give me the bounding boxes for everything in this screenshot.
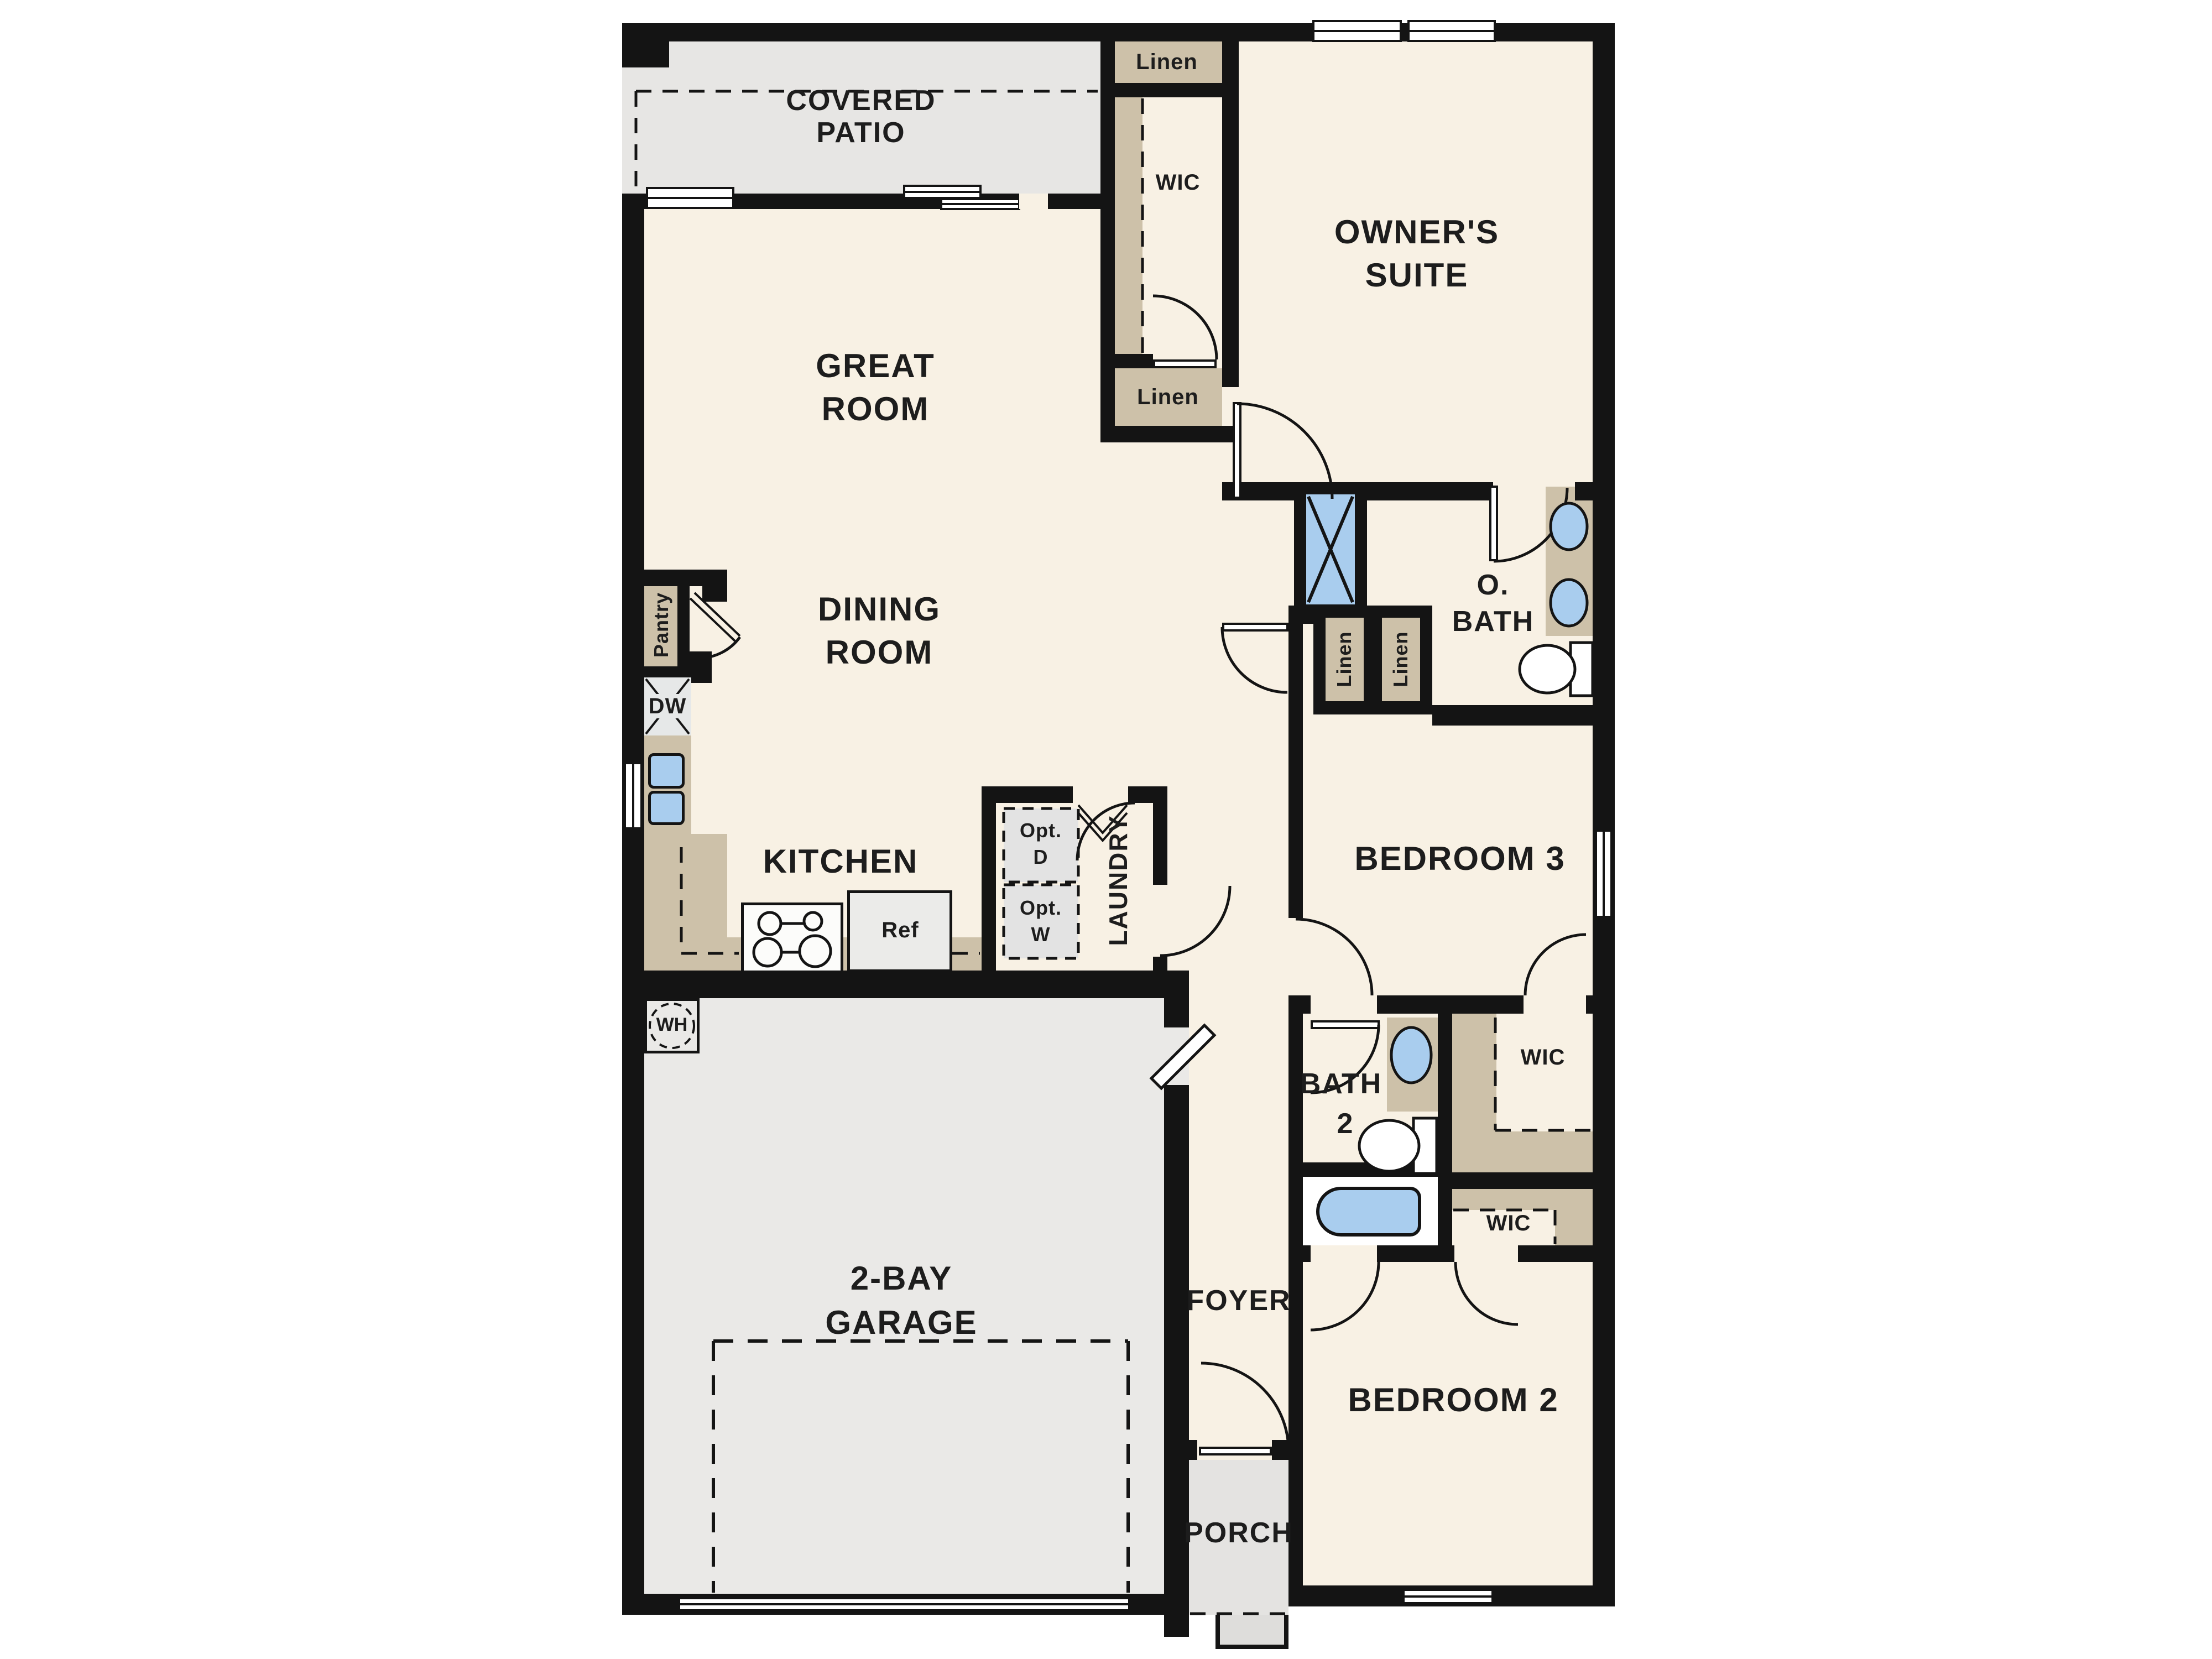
- wic-bed3-dashed: [1495, 1018, 1592, 1130]
- room-label-kitchen: KITCHEN: [763, 845, 919, 878]
- toilet-bowl: [1359, 1120, 1419, 1171]
- appliance-label-opt-dryer: D: [1034, 847, 1048, 867]
- burner: [804, 912, 822, 930]
- burner: [759, 912, 781, 935]
- appliance-label-opt-washer: W: [1031, 925, 1051, 945]
- burner: [754, 938, 781, 966]
- room-label-bedroom2: BEDROOM 2: [1348, 1384, 1558, 1417]
- closet-label-linen: Linen: [1391, 632, 1411, 687]
- sink: [1551, 580, 1587, 626]
- room-label-foyer: FOYER: [1186, 1286, 1291, 1315]
- door-arc: [1201, 1363, 1288, 1451]
- closet-label-wic: WIC: [1521, 1046, 1566, 1068]
- garage-bay-dashed: [713, 1341, 1128, 1593]
- door-arc: [1296, 919, 1372, 995]
- closet-label-linen: Linen: [1334, 632, 1354, 687]
- closet-label-linen: Linen: [1136, 51, 1198, 73]
- door-arc: [1455, 1262, 1518, 1324]
- room-label-porch: PORCH: [1184, 1519, 1293, 1547]
- appliance-label-dishwasher: DW: [645, 695, 690, 717]
- toilet-bowl: [1520, 645, 1575, 693]
- closet-label-pantry: Pantry: [651, 592, 671, 658]
- sink: [1391, 1027, 1431, 1083]
- door-arc: [1222, 627, 1287, 692]
- burner: [800, 936, 831, 967]
- room-label-great-room: ROOM: [822, 393, 930, 426]
- room-label-owners-bath: BATH: [1452, 607, 1535, 636]
- room-label-bedroom3: BEDROOM 3: [1354, 842, 1565, 875]
- room-label-covered-patio: PATIO: [816, 118, 905, 147]
- shower-x: [1308, 497, 1353, 602]
- room-label-owners-suite: SUITE: [1365, 259, 1469, 292]
- garage-entry-door: [1151, 1025, 1214, 1088]
- room-label-garage: GARAGE: [825, 1306, 977, 1339]
- room-label-owners-suite: OWNER'S: [1334, 216, 1499, 249]
- room-label-garage: 2-BAY: [851, 1262, 953, 1295]
- room-label-dining-room: ROOM: [826, 636, 933, 669]
- door-arc: [1311, 1262, 1379, 1330]
- appliance-label-refrigerator: Ref: [881, 919, 919, 941]
- door-arc: [1160, 886, 1230, 956]
- sink: [1551, 503, 1587, 550]
- door-arc: [1237, 404, 1332, 499]
- room-label-bath2: 2: [1337, 1109, 1354, 1138]
- appliance-label-opt-washer: Opt.: [1020, 898, 1062, 918]
- room-label-dining-room: DINING: [818, 593, 941, 626]
- opt-washer-dashed: [1004, 885, 1078, 958]
- closet-label-wic: WIC: [1156, 171, 1201, 194]
- pantry-door: [690, 593, 740, 641]
- closet-label-wic: WIC: [1486, 1212, 1531, 1234]
- appliance-label-opt-dryer: Opt.: [1020, 821, 1062, 841]
- room-label-bath2: BATH: [1300, 1070, 1383, 1098]
- closet-label-linen: Linen: [1137, 386, 1199, 408]
- door-arc: [1525, 935, 1586, 995]
- floor-plan: COVERED PATIO GREAT ROOM Linen WIC OWNER…: [0, 0, 2212, 1659]
- room-label-covered-patio: COVERED: [786, 86, 936, 115]
- room-label-owners-bath: O.: [1477, 571, 1510, 599]
- room-label-great-room: GREAT: [816, 349, 935, 383]
- room-label-laundry: LAUNDRY: [1105, 815, 1131, 946]
- appliance-label-water-heater: WH: [656, 1015, 688, 1034]
- door-arc: [1153, 296, 1217, 359]
